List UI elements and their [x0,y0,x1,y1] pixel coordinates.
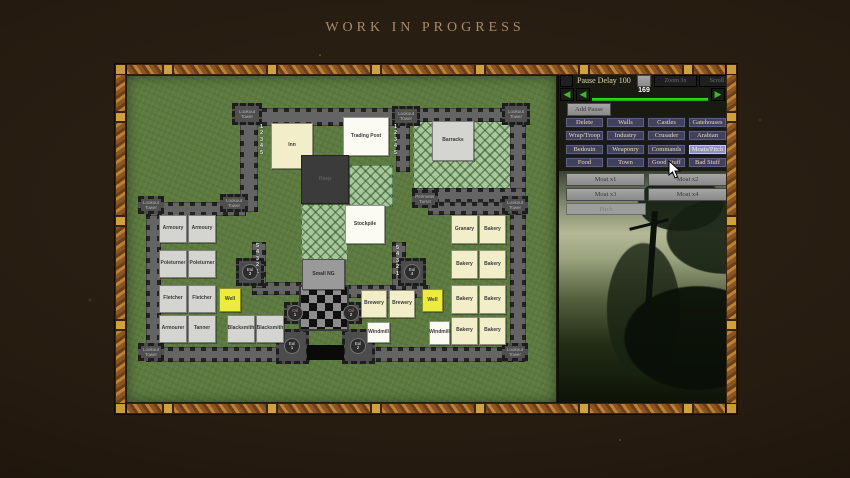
ballista-marker-1: Bal 1 [284,338,300,354]
moat-x3-button[interactable]: Moat x3 [566,188,645,201]
category-delete-button[interactable]: Delete [565,117,604,128]
moat-patch [349,165,393,207]
work-in-progress-banner: WORK IN PROGRESS [0,20,850,36]
lookout-tower: Lookout Tower [502,343,528,361]
castle-wall [510,202,526,362]
building-keep: Keep [301,155,349,204]
category-town-button[interactable]: Town [606,157,645,168]
building-barracks: Barracks [432,121,474,161]
building-bakery: Bakery [479,250,506,279]
category-castles-button[interactable]: Castles [647,117,686,128]
building-granary: Granary [451,215,478,244]
first-frame-button[interactable]: ◀ [560,88,574,101]
marker-num: 1 [294,313,297,318]
building-armourer: Armourer [159,315,187,343]
building-tanner: Tanner [188,315,216,343]
category-crusader-button[interactable]: Crusader [647,130,686,141]
building-armoury: Armoury [159,215,187,243]
stair-numbers: 1 2 3 4 5 [394,124,397,156]
oil-marker-2: Oil 2 [343,305,359,321]
building-fletcher: Fletcher [159,285,187,313]
building-blacksmith: Blacksmith [227,315,255,343]
lookout-tower: Lookout Tower [232,103,262,125]
building-well: Well [422,289,443,312]
moat-x2-button[interactable]: Moat x2 [648,173,726,186]
building-brewery: Brewery [389,290,415,318]
building-bakery: Bakery [479,285,506,314]
frame-right [726,64,737,414]
oil-marker-1: Oil 1 [287,305,303,321]
category-industry-button[interactable]: Industry [606,130,645,141]
building-bakery: Bakery [479,215,506,244]
category-moats-pitch-button[interactable]: Moats/Pitch [688,144,726,155]
building-blacksmith: Blacksmith [256,315,284,343]
marker-num: 3 [249,272,252,277]
pitch-button[interactable]: Pitch [566,203,646,215]
app-window: WORK IN PROGRESS [0,0,850,478]
building-stockpile: Stockpile [345,205,385,244]
editor-panel: Pause Delay 100 Zoom 3x Scroll 2x ◀ ◀ 16… [557,75,726,403]
left-arrow-icon: ◀ [580,90,587,99]
building-armoury: Armoury [188,215,216,243]
frame-counter: 169 [614,87,674,94]
progress-bar[interactable] [591,97,709,102]
moat-x4-button[interactable]: Moat x4 [648,188,726,201]
category-food-button[interactable]: Food [565,157,604,168]
ballista-marker-2: Bal 2 [350,338,366,354]
building-poleturner: Poleturner [188,250,216,278]
frame-corner-knob [115,403,126,414]
mouse-cursor [668,160,681,184]
lookout-tower: Lookout Tower [220,194,248,212]
building-bakery: Bakery [451,317,478,345]
lookout-tower: Lookout Tower [502,196,528,214]
prev-frame-button[interactable]: ◀ [576,88,590,101]
marker-num: 1 [291,346,294,351]
frame-corner-knob [115,64,126,75]
frame-left [115,64,126,414]
building-bakery: Bakery [479,317,506,345]
castle-wall [346,285,430,298]
building-well: Well [219,288,241,312]
perimeter-turret: Perimeter Turret [412,190,438,208]
pause-delay-stepper[interactable] [637,75,651,87]
panel-corner-button[interactable] [560,75,573,87]
tree-silhouette [642,211,658,351]
right-arrow-icon: ▶ [715,90,722,99]
frame-corner-knob [726,64,737,75]
building-fletcher: Fletcher [188,285,216,313]
zoom-button[interactable]: Zoom 3x [654,75,697,87]
frame-corner-knob [726,403,737,414]
add-pause-button[interactable]: Add Pause [567,103,611,116]
tree-branch-silhouette [629,218,669,231]
marker-num: 2 [350,313,353,318]
building-windmill: Windmill [367,322,390,343]
double-left-arrow-icon: ◀ [564,90,571,99]
lookout-tower: Lookout Tower [392,106,420,126]
category-arabian-button[interactable]: Arabian [688,130,726,141]
stair-numbers: 5 4 3 2 1 [396,245,399,277]
building-small-gatehouse: Small NG [302,259,345,290]
category-walls-button[interactable]: Walls [606,117,645,128]
gate-opening [307,345,344,360]
castle-wall [396,122,410,172]
lookout-tower: Lookout Tower [138,196,164,214]
lookout-tower: Lookout Tower [502,103,530,125]
category-commands-button[interactable]: Commands [647,144,686,155]
ballista-marker-4: Bal 4 [404,264,420,280]
category-weaponry-button[interactable]: Weaponry [606,144,645,155]
category-bedouin-button[interactable]: Bedouin [565,144,604,155]
marker-num: 4 [411,272,414,277]
building-trading-post: Trading Post [343,117,389,156]
building-bakery: Bakery [451,250,478,279]
category-wrap-troop-button[interactable]: Wrap/Troop [565,130,604,141]
map-canvas[interactable]: Lookout Tower Lookout Tower Lookout Towe… [126,75,557,403]
building-bakery: Bakery [451,285,478,314]
building-poleturner: Poleturner [159,250,187,278]
scroll-button[interactable]: Scroll 2x [699,75,726,87]
stair-numbers: 1 2 3 4 5 [260,124,263,156]
moat-patch [301,204,348,260]
lookout-tower: Lookout Tower [138,343,164,361]
frame-bottom [115,403,737,414]
building-windmill: Windmill [429,321,450,345]
building-brewery: Brewery [361,290,387,318]
killing-pits-checkerboard [299,285,349,331]
pause-delay-label: Pause Delay 100 [577,76,631,85]
next-frame-button[interactable]: ▶ [711,88,725,101]
ballista-marker-3: Bal 3 [242,264,258,280]
moat-x1-button[interactable]: Moat x1 [566,173,645,186]
category-gatehouses-button[interactable]: Gatehouses [688,117,726,128]
marker-num: 2 [357,346,360,351]
frame-top [115,64,737,75]
category-bad-stuff-button[interactable]: Bad Stuff [688,157,726,168]
cursor-arrow-icon [668,160,681,179]
